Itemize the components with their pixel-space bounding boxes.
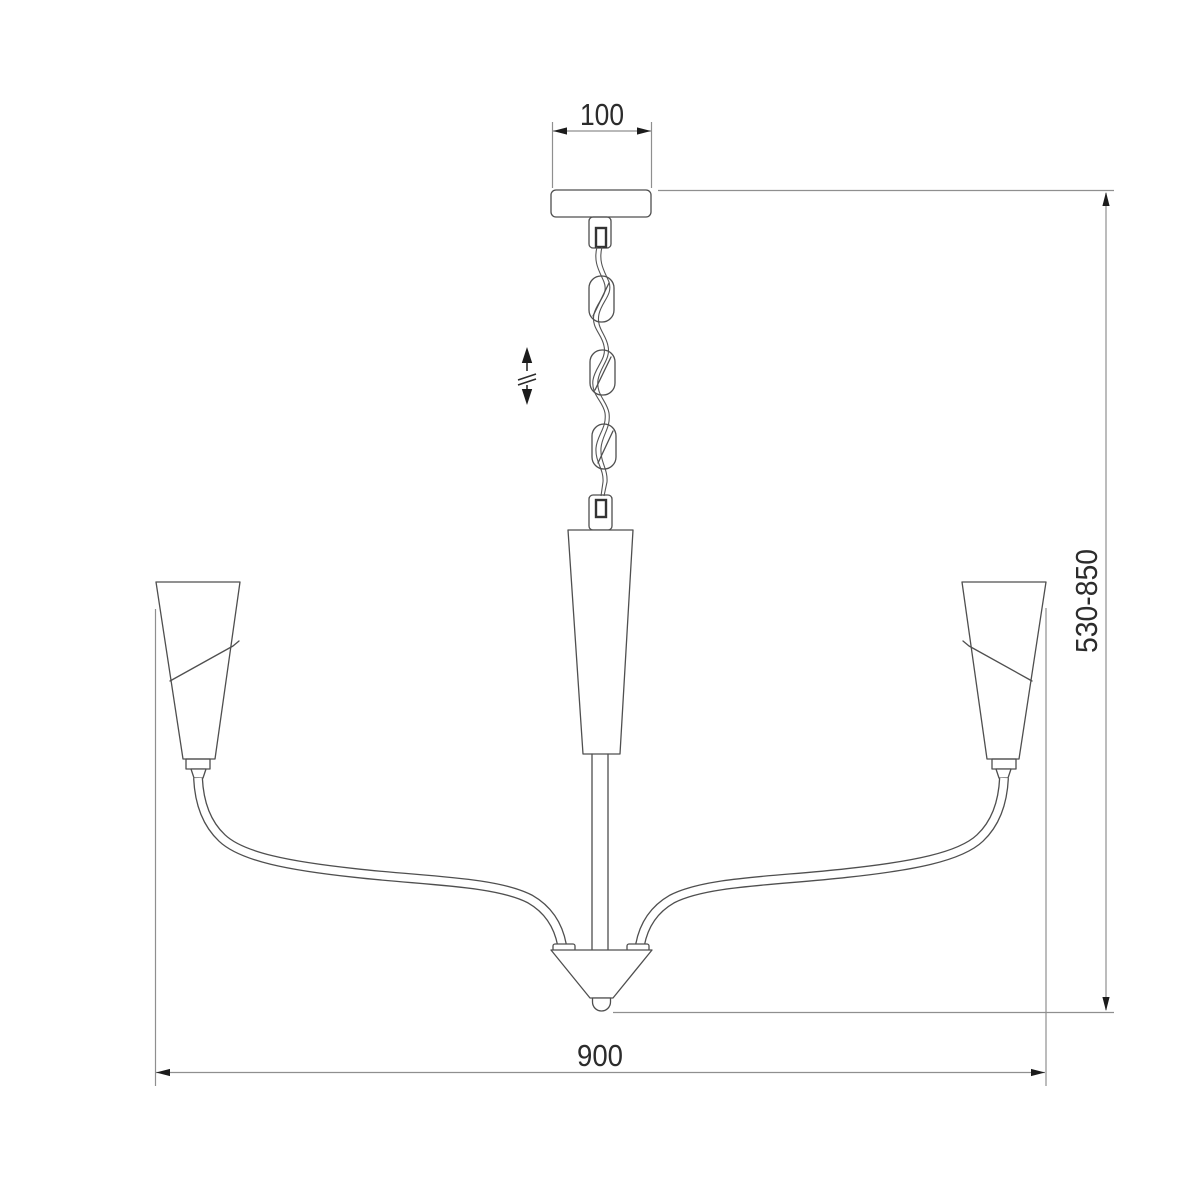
- chain-top-link-end: [596, 228, 606, 247]
- dim-label-height-range: 530-850: [1069, 549, 1104, 653]
- left-socket-neck: [191, 769, 206, 778]
- right-shade: [962, 582, 1046, 759]
- arrowhead-down-icon: [1102, 997, 1109, 1011]
- arrowhead-right-icon: [1031, 1069, 1045, 1076]
- chain-bottom-link-end: [596, 500, 606, 517]
- hub-cone: [551, 950, 652, 998]
- right-socket: [992, 759, 1016, 769]
- right-arm: [640, 778, 1004, 945]
- chain-top-connector: [589, 217, 611, 248]
- left-socket: [186, 759, 210, 769]
- adjust-arrow-up-icon: [522, 347, 532, 363]
- left-shade: [156, 582, 240, 759]
- dim-label-canopy-width: 100: [580, 97, 624, 132]
- chandelier-dimension-drawing: 100: [0, 0, 1200, 1200]
- arrowhead-left-icon: [156, 1069, 170, 1076]
- chain-link-cross: [598, 431, 613, 463]
- drawing-canvas: 100: [0, 0, 1200, 1200]
- arrowhead-right-icon: [637, 127, 651, 134]
- dim-canopy-width: 100: [553, 97, 652, 188]
- center-column: [568, 530, 633, 950]
- right-socket-neck: [996, 769, 1011, 778]
- bottom-hub: [551, 950, 652, 1011]
- height-adjust-symbol: [518, 347, 536, 405]
- chain-assembly: [589, 217, 616, 530]
- arrowhead-up-icon: [1102, 192, 1109, 206]
- canopy-plate: [551, 190, 651, 217]
- adjust-arrow-down-icon: [522, 389, 532, 405]
- left-arm: [198, 778, 562, 945]
- column-cone: [568, 530, 633, 754]
- arrowhead-left-icon: [553, 127, 567, 134]
- right-arm: [640, 778, 1004, 945]
- right-arm-assembly: [627, 582, 1046, 951]
- dim-label-overall-width: 900: [577, 1038, 623, 1073]
- chain-link-cross: [593, 283, 609, 316]
- left-arm-assembly: [156, 582, 575, 951]
- left-arm: [198, 778, 562, 945]
- chain-link-cross: [595, 357, 611, 390]
- finial-ball: [593, 998, 611, 1011]
- canopy: [551, 190, 651, 217]
